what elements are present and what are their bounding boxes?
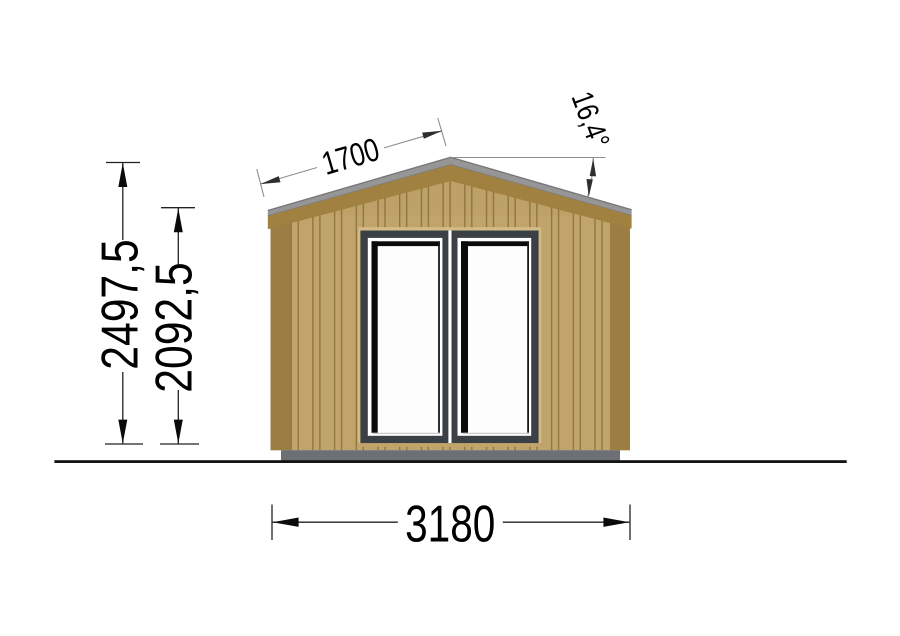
svg-text:2497,5: 2497,5 — [92, 239, 150, 369]
svg-text:2092,5: 2092,5 — [146, 262, 204, 392]
svg-text:3180: 3180 — [405, 495, 495, 553]
